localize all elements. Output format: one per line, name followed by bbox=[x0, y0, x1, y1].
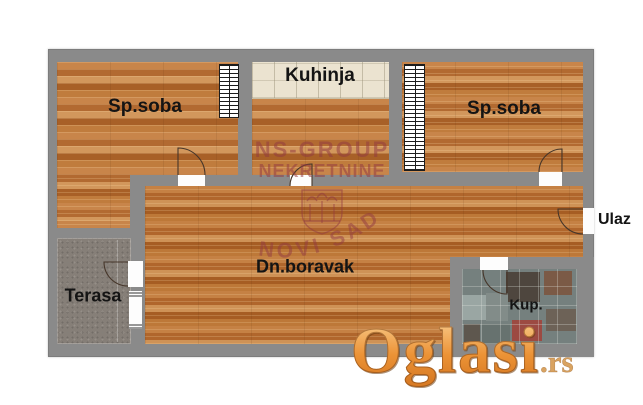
tile-patch bbox=[546, 309, 576, 331]
tile-patch bbox=[462, 295, 490, 320]
terrace-guide-line bbox=[117, 240, 118, 342]
room-bedroom-right bbox=[402, 62, 583, 172]
room-terrace bbox=[57, 238, 131, 344]
wardrobe-icon bbox=[219, 64, 239, 118]
wardrobe-icon bbox=[404, 64, 425, 171]
floor-plan: NOVI SAD NS-GROUP NEKRETNINE Sp.soba Kuh… bbox=[48, 49, 594, 357]
window-icon bbox=[129, 291, 142, 329]
tile-patch bbox=[544, 271, 572, 295]
room-bathroom bbox=[462, 269, 577, 344]
tile-patch bbox=[512, 320, 542, 341]
room-bedroom-left-extension bbox=[57, 175, 130, 228]
tile-patch bbox=[482, 324, 510, 344]
door-threshold-bedroom-left bbox=[178, 175, 205, 186]
shower-tile bbox=[506, 272, 540, 302]
floor-plan-image: NOVI SAD NS-GROUP NEKRETNINE Sp.soba Kuh… bbox=[0, 0, 643, 405]
door-threshold-kitchen bbox=[290, 175, 312, 186]
door-threshold-bedroom-right bbox=[539, 172, 562, 186]
kitchen-counter bbox=[252, 62, 389, 99]
door-threshold-balcony bbox=[128, 261, 143, 287]
door-threshold-bathroom bbox=[480, 257, 508, 270]
tile-patch bbox=[464, 324, 480, 342]
entrance-label: Ulaz bbox=[598, 211, 631, 229]
tile-patch bbox=[486, 293, 508, 321]
room-bedroom-left bbox=[57, 62, 238, 175]
door-threshold-entrance bbox=[583, 208, 594, 234]
